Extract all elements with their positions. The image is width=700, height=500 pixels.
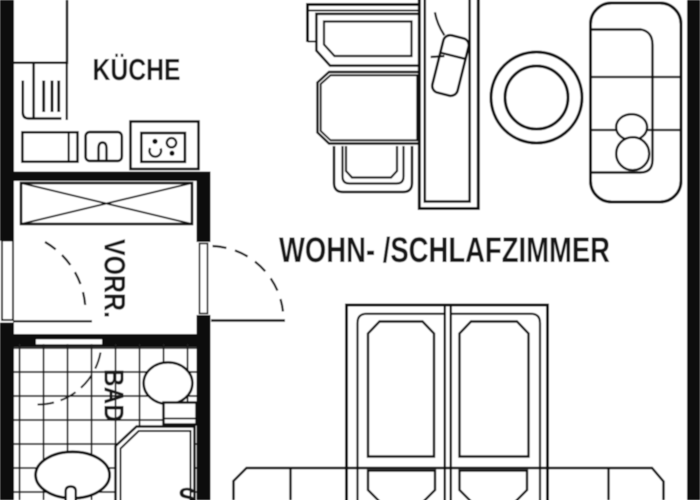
svg-text:KÜCHE: KÜCHE [93, 52, 181, 87]
svg-text:S: S [178, 483, 196, 500]
svg-text:WOHN- /SCHLAFZIMMER: WOHN- /SCHLAFZIMMER [279, 231, 610, 270]
svg-text:VORR.: VORR. [98, 239, 131, 318]
